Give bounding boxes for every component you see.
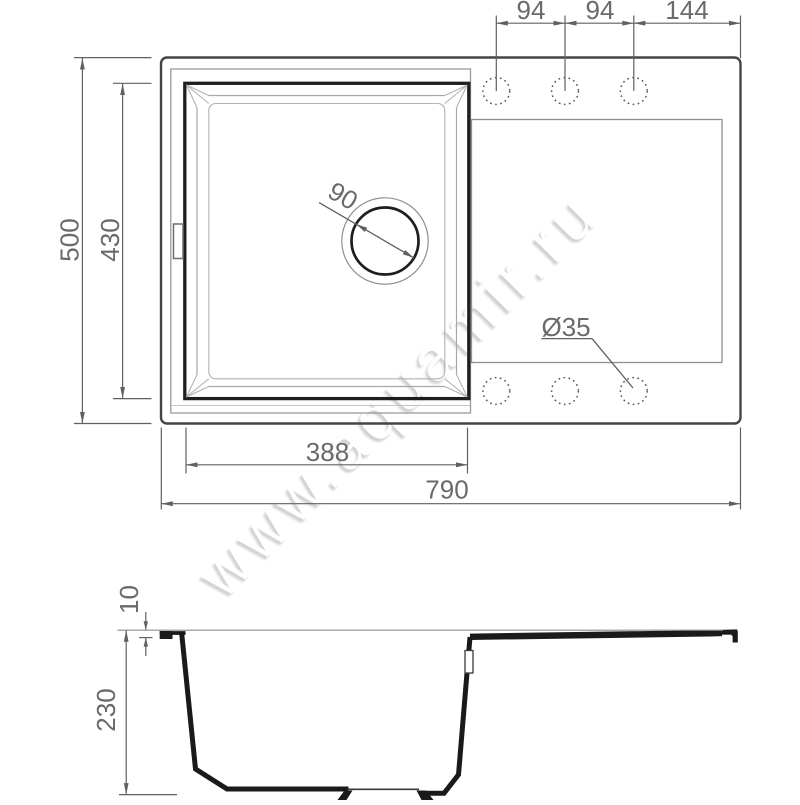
svg-text:790: 790 (425, 475, 468, 505)
svg-text:230: 230 (91, 688, 121, 731)
svg-text:94: 94 (517, 0, 546, 25)
svg-text:10: 10 (114, 585, 144, 614)
svg-text:Ø35: Ø35 (542, 312, 591, 342)
svg-text:94: 94 (586, 0, 615, 25)
svg-text:388: 388 (306, 437, 349, 467)
svg-text:500: 500 (55, 218, 85, 261)
svg-text:430: 430 (95, 218, 125, 261)
svg-text:144: 144 (665, 0, 708, 25)
